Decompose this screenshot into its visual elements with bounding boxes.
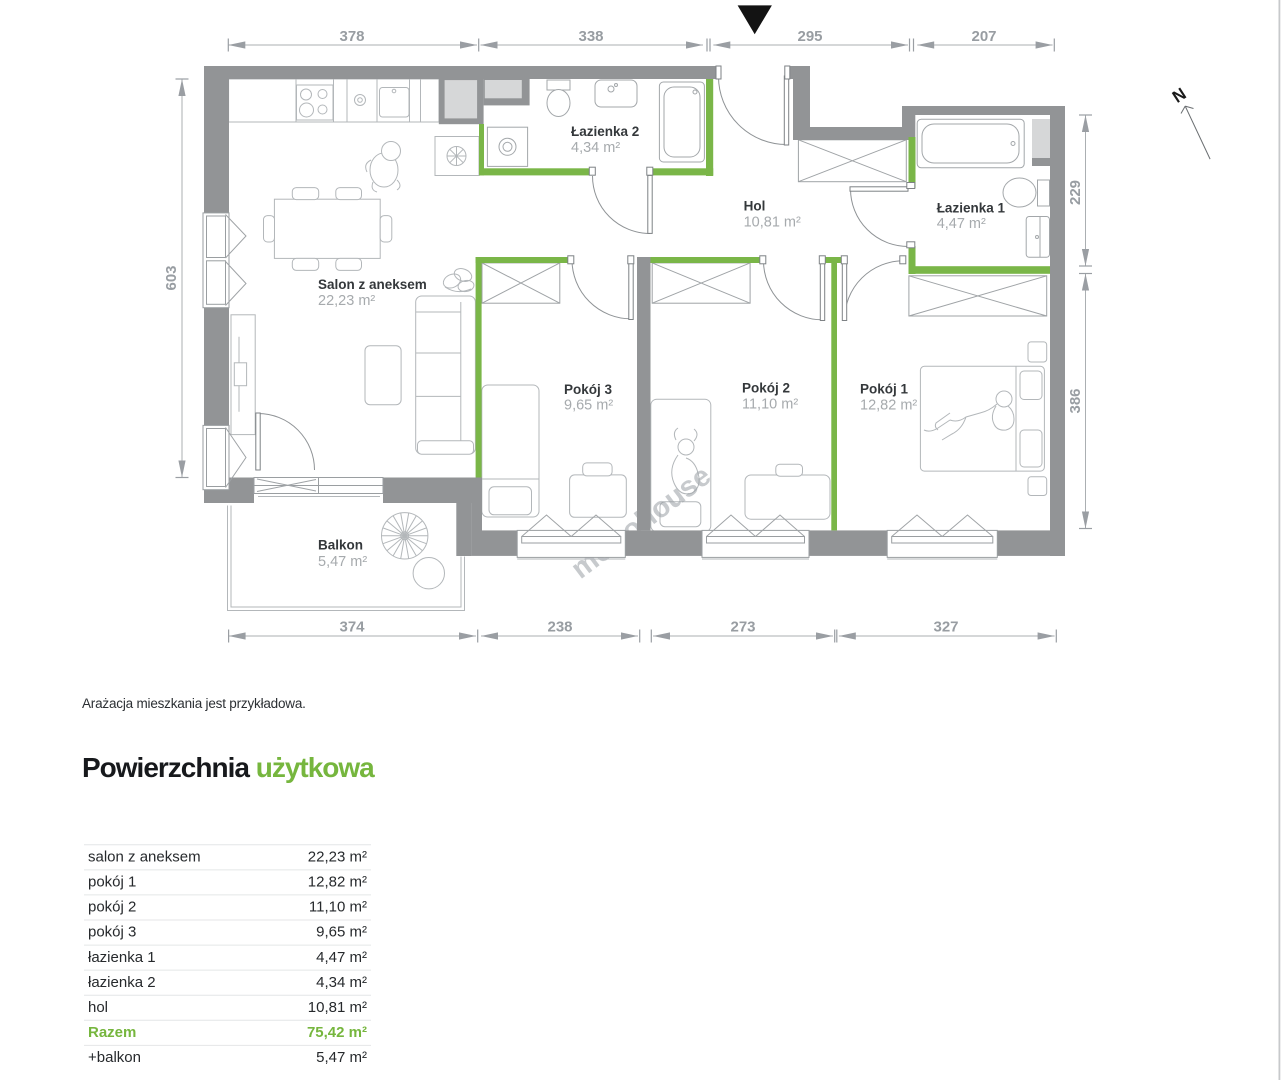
svg-text:Pokój 2: Pokój 2 (742, 381, 790, 396)
svg-text:5,47 m²: 5,47 m² (316, 1049, 367, 1066)
svg-text:Łazienka 1: Łazienka 1 (937, 201, 1006, 216)
svg-text:10,81 m²: 10,81 m² (308, 999, 367, 1016)
svg-text:11,10 m²: 11,10 m² (309, 899, 367, 916)
svg-text:pokój 2: pokój 2 (88, 899, 136, 916)
svg-text:11,10 m²: 11,10 m² (742, 397, 798, 413)
svg-text:9,65 m²: 9,65 m² (316, 924, 367, 941)
svg-text:Łazienka 2: Łazienka 2 (571, 124, 639, 139)
svg-text:12,82 m²: 12,82 m² (860, 398, 917, 414)
svg-text:Pokój 1: Pokój 1 (860, 382, 909, 397)
svg-text:327: 327 (933, 619, 958, 636)
svg-text:Powierzchnia użytkowa: Powierzchnia użytkowa (82, 752, 375, 783)
svg-text:4,47 m²: 4,47 m² (316, 949, 367, 966)
svg-text:603: 603 (163, 265, 180, 290)
svg-text:378: 378 (339, 28, 364, 45)
svg-text:pokój 1: pokój 1 (88, 874, 136, 891)
svg-text:10,81 m²: 10,81 m² (744, 215, 801, 231)
svg-text:75,42 m²: 75,42 m² (307, 1024, 367, 1041)
svg-text:238: 238 (547, 619, 572, 636)
svg-text:łazienka 1: łazienka 1 (88, 949, 156, 966)
svg-text:273: 273 (730, 619, 755, 636)
svg-text:12,82 m²: 12,82 m² (308, 874, 367, 891)
svg-text:pokój 3: pokój 3 (88, 924, 136, 941)
svg-text:Balkon: Balkon (318, 538, 363, 553)
svg-text:+balkon: +balkon (88, 1049, 141, 1066)
svg-text:9,65 m²: 9,65 m² (564, 398, 613, 414)
svg-text:5,47 m²: 5,47 m² (318, 554, 367, 570)
svg-text:386: 386 (1067, 388, 1084, 413)
svg-text:Salon z aneksem: Salon z aneksem (318, 277, 427, 292)
svg-text:229: 229 (1067, 180, 1084, 205)
svg-text:4,34 m²: 4,34 m² (316, 974, 367, 991)
svg-text:Arażacja mieszkania jest przyk: Arażacja mieszkania jest przykładowa. (82, 696, 306, 711)
svg-text:207: 207 (971, 28, 996, 45)
svg-text:hol: hol (88, 999, 108, 1016)
svg-text:338: 338 (578, 28, 603, 45)
svg-text:22,23 m²: 22,23 m² (308, 849, 367, 866)
svg-text:4,47 m²: 4,47 m² (937, 216, 986, 232)
svg-text:4,34 m²: 4,34 m² (571, 140, 620, 156)
svg-text:łazienka 2: łazienka 2 (88, 974, 156, 991)
svg-text:295: 295 (797, 28, 822, 45)
svg-text:22,23 m²: 22,23 m² (318, 293, 375, 309)
svg-text:salon z aneksem: salon z aneksem (88, 849, 201, 866)
svg-text:Hol: Hol (744, 199, 766, 214)
svg-text:Razem: Razem (88, 1024, 136, 1041)
svg-text:374: 374 (339, 619, 365, 636)
svg-text:Pokój 3: Pokój 3 (564, 382, 613, 397)
